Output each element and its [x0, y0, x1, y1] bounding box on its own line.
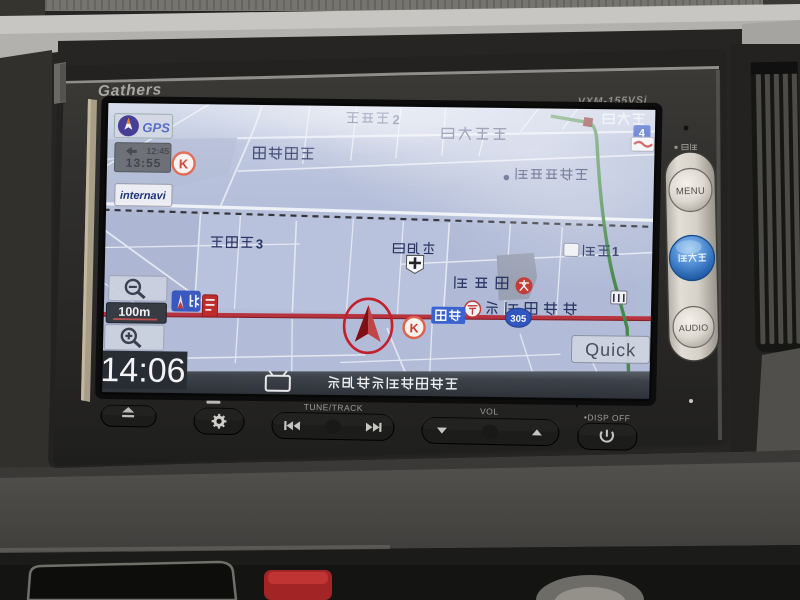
svg-text:Quick: Quick	[585, 340, 636, 361]
svg-text:305: 305	[510, 314, 527, 325]
svg-text:TUNE/TRACK: TUNE/TRACK	[304, 402, 363, 413]
svg-text:14:06: 14:06	[100, 351, 186, 390]
svg-text:12:45: 12:45	[146, 146, 169, 156]
svg-text:VOL: VOL	[480, 406, 499, 416]
svg-text:MENU: MENU	[676, 186, 705, 198]
svg-text:internavi: internavi	[120, 190, 167, 203]
svg-text:13:55: 13:55	[126, 156, 162, 170]
svg-text:K: K	[409, 321, 418, 335]
svg-text:3: 3	[256, 236, 264, 251]
svg-text:GPS: GPS	[142, 120, 170, 135]
svg-text:•DISP OFF: •DISP OFF	[584, 412, 631, 423]
svg-text:AUDIO: AUDIO	[679, 323, 709, 334]
svg-text:100m: 100m	[118, 305, 150, 319]
